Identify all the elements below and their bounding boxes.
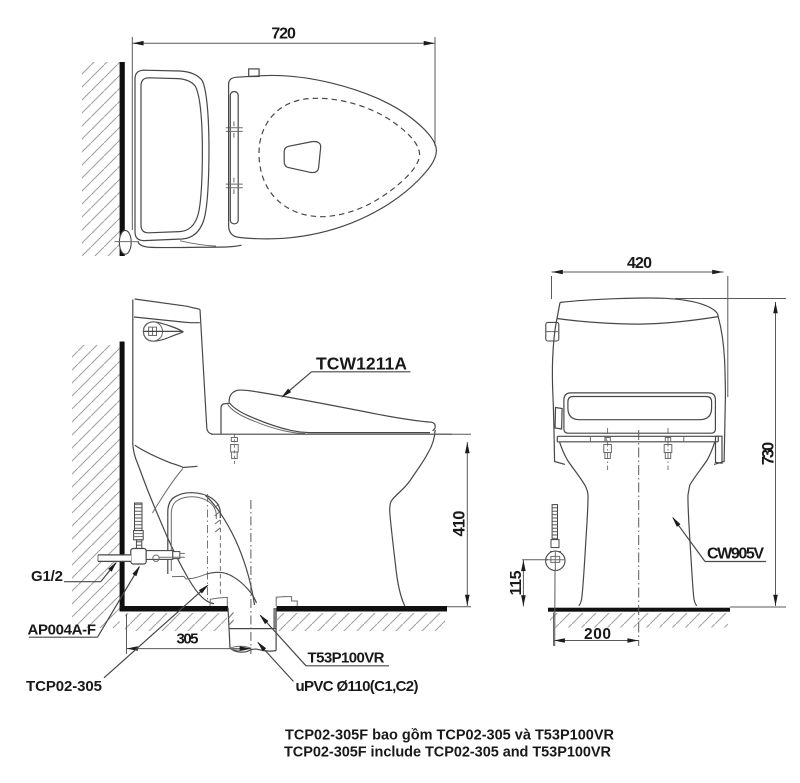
- svg-text:730: 730: [760, 442, 778, 466]
- svg-text:T53P100VR: T53P100VR: [308, 650, 385, 667]
- svg-text:TCP02-305F include TCP02-305 a: TCP02-305F include TCP02-305 and T53P100…: [284, 745, 612, 761]
- svg-text:115: 115: [508, 570, 525, 595]
- svg-text:TCW1211A: TCW1211A: [316, 354, 407, 374]
- svg-text:420: 420: [627, 255, 652, 272]
- svg-text:305: 305: [177, 631, 199, 648]
- svg-text:CW905V: CW905V: [707, 546, 764, 563]
- svg-text:TCP02-305: TCP02-305: [26, 678, 102, 695]
- svg-text:410: 410: [451, 511, 469, 537]
- svg-text:uPVC Ø110(C1,C2): uPVC Ø110(C1,C2): [296, 678, 419, 695]
- svg-text:G1/2: G1/2: [31, 568, 63, 585]
- svg-text:720: 720: [271, 26, 296, 43]
- svg-text:200: 200: [584, 626, 611, 643]
- svg-text:TCP02-305F bao gồm TCP02-305 v: TCP02-305F bao gồm TCP02-305 và T53P100V…: [285, 728, 615, 744]
- svg-text:AP004A-F: AP004A-F: [28, 622, 97, 639]
